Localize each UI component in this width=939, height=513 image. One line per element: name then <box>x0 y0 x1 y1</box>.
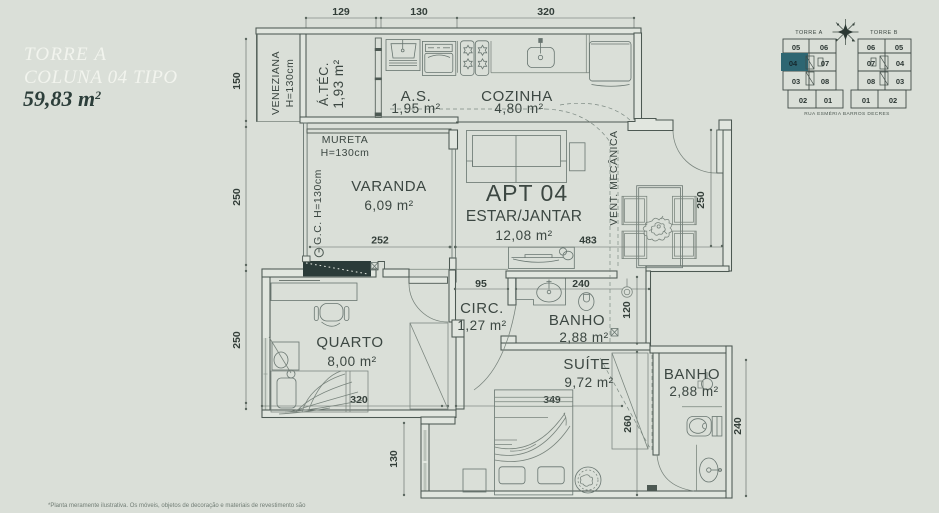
svg-text:483: 483 <box>579 235 597 247</box>
svg-text:320: 320 <box>537 6 555 18</box>
svg-text:ESTAR/JANTAR: ESTAR/JANTAR <box>466 208 582 225</box>
svg-text:RUA ESMÉRIA BARROS DECRES: RUA ESMÉRIA BARROS DECRES <box>804 110 889 117</box>
svg-text:05: 05 <box>792 43 800 52</box>
svg-text:320: 320 <box>350 394 368 406</box>
svg-text:250: 250 <box>231 188 243 206</box>
svg-text:1,95 m²: 1,95 m² <box>391 101 440 116</box>
svg-text:03: 03 <box>896 77 904 86</box>
svg-text:8,00 m²: 8,00 m² <box>327 354 376 369</box>
svg-text:2,88 m²: 2,88 m² <box>669 384 718 399</box>
svg-text:6,09 m²: 6,09 m² <box>364 198 413 213</box>
svg-text:*Planta meramente ilustrativa.: *Planta meramente ilustrativa. Os móveis… <box>48 503 306 509</box>
svg-text:02: 02 <box>799 96 807 105</box>
svg-text:250: 250 <box>231 331 243 349</box>
svg-text:H=130cm: H=130cm <box>284 59 296 108</box>
svg-text:G.C. H=130cm: G.C. H=130cm <box>312 169 324 245</box>
svg-text:07: 07 <box>821 59 829 68</box>
svg-text:VENEZIANA: VENEZIANA <box>270 51 282 115</box>
svg-text:2,88 m²: 2,88 m² <box>559 330 608 345</box>
svg-text:03: 03 <box>792 77 800 86</box>
svg-text:59,83 m2: 59,83 m2 <box>23 86 101 111</box>
svg-text:CIRC.: CIRC. <box>460 300 504 317</box>
svg-text:BANHO: BANHO <box>549 312 605 329</box>
svg-text:04: 04 <box>896 59 905 68</box>
svg-text:08: 08 <box>821 77 829 86</box>
svg-text:250: 250 <box>695 191 707 209</box>
svg-text:04: 04 <box>789 59 798 68</box>
svg-text:VARANDA: VARANDA <box>351 178 427 195</box>
svg-text:130: 130 <box>410 6 428 18</box>
svg-text:1,93 m²: 1,93 m² <box>331 59 346 108</box>
svg-text:TORRE A: TORRE A <box>24 44 107 65</box>
svg-text:BANHO: BANHO <box>664 366 720 383</box>
svg-text:07: 07 <box>867 59 875 68</box>
svg-text:130: 130 <box>388 450 400 468</box>
svg-text:9,72 m²: 9,72 m² <box>564 375 613 390</box>
svg-text:95: 95 <box>475 278 487 290</box>
svg-text:240: 240 <box>572 278 590 290</box>
svg-text:01: 01 <box>824 96 832 105</box>
svg-text:06: 06 <box>820 43 828 52</box>
svg-text:240: 240 <box>732 417 744 435</box>
svg-text:COLUNA 04 TIPO: COLUNA 04 TIPO <box>24 67 178 88</box>
svg-text:120: 120 <box>621 301 633 319</box>
svg-text:260: 260 <box>622 415 634 433</box>
svg-text:QUARTO: QUARTO <box>316 334 383 351</box>
svg-text:150: 150 <box>231 72 243 90</box>
svg-text:APT 04: APT 04 <box>486 180 568 206</box>
svg-text:349: 349 <box>543 394 561 406</box>
svg-text:252: 252 <box>371 235 389 247</box>
svg-text:TORRE A: TORRE A <box>795 30 823 36</box>
svg-text:02: 02 <box>889 96 897 105</box>
svg-text:SUÍTE: SUÍTE <box>563 356 610 373</box>
svg-text:08: 08 <box>867 77 875 86</box>
svg-text:H=130cm: H=130cm <box>321 147 370 159</box>
svg-text:129: 129 <box>332 6 350 18</box>
svg-text:12,08 m²: 12,08 m² <box>495 228 552 243</box>
svg-text:MURETA: MURETA <box>322 134 369 146</box>
svg-text:05: 05 <box>895 43 903 52</box>
svg-text:TORRE B: TORRE B <box>870 30 898 36</box>
svg-text:1,27 m²: 1,27 m² <box>457 318 506 333</box>
svg-text:Á.TÉC.: Á.TÉC. <box>316 62 331 106</box>
svg-text:06: 06 <box>867 43 875 52</box>
svg-text:VENT. MECÂNICA: VENT. MECÂNICA <box>607 130 620 225</box>
svg-text:01: 01 <box>862 96 870 105</box>
svg-text:4,80 m²: 4,80 m² <box>494 101 543 116</box>
